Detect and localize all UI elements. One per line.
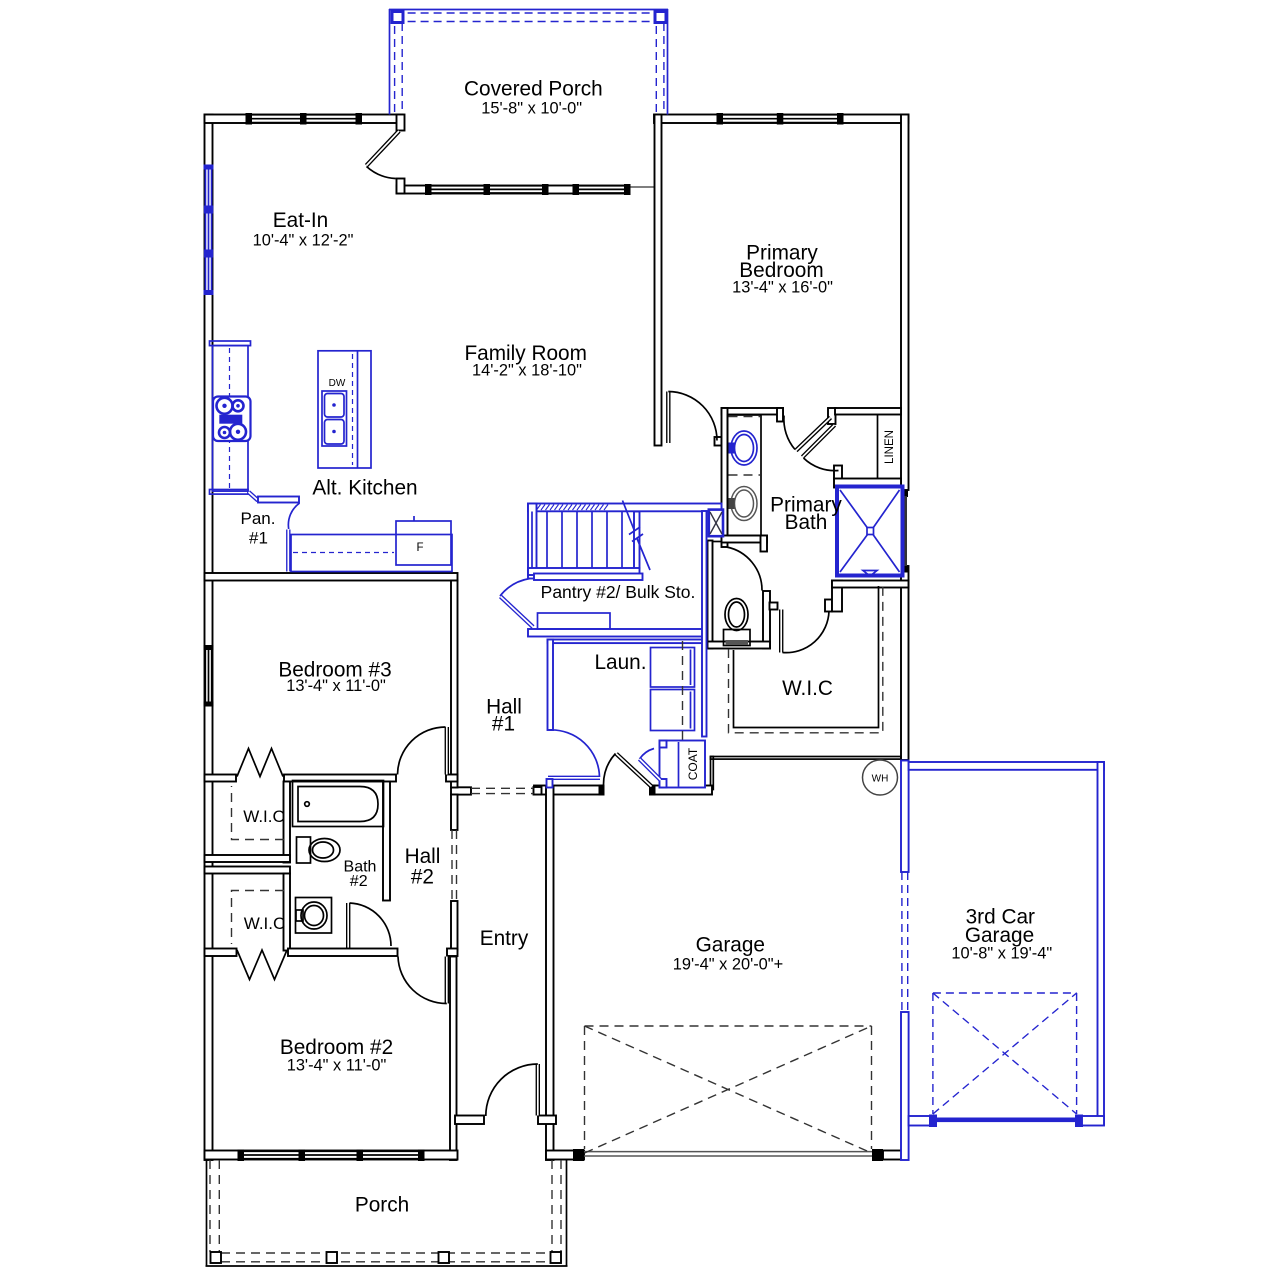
svg-text:Entry: Entry: [480, 927, 529, 950]
svg-text:10'-4" x 12'-2": 10'-4" x 12'-2": [253, 232, 354, 250]
svg-text:#2: #2: [350, 873, 368, 890]
svg-text:DW: DW: [329, 378, 346, 389]
svg-text:Eat-In: Eat-In: [273, 209, 329, 232]
svg-text:#1: #1: [249, 529, 268, 548]
svg-text:19'-4" x 20'-0"+: 19'-4" x 20'-0"+: [673, 956, 783, 974]
svg-text:#1: #1: [492, 713, 515, 736]
svg-text:13'-4" x 16'-0": 13'-4" x 16'-0": [732, 279, 833, 297]
svg-text:Porch: Porch: [355, 1194, 409, 1217]
svg-text:W.I.C: W.I.C: [244, 914, 286, 933]
svg-text:Pantry #2/ Bulk Sto.: Pantry #2/ Bulk Sto.: [541, 582, 696, 602]
svg-text:14'-2" x 18'-10": 14'-2" x 18'-10": [472, 362, 582, 380]
svg-text:Bath: Bath: [785, 511, 828, 534]
svg-text:Covered Porch: Covered Porch: [464, 78, 603, 101]
svg-text:13'-4" x 11'-0": 13'-4" x 11'-0": [287, 1057, 387, 1075]
svg-text:LINEN: LINEN: [884, 430, 896, 464]
svg-text:Laun.: Laun.: [594, 651, 646, 674]
svg-text:Pan.: Pan.: [241, 509, 276, 528]
svg-text:#2: #2: [411, 866, 434, 889]
svg-text:Garage: Garage: [696, 933, 765, 956]
svg-text:13'-4" x 11'-0": 13'-4" x 11'-0": [286, 677, 386, 695]
svg-text:Alt. Kitchen: Alt. Kitchen: [312, 477, 417, 500]
svg-text:COAT: COAT: [686, 747, 700, 780]
svg-text:W.I.C: W.I.C: [782, 677, 833, 700]
svg-text:W.I.C: W.I.C: [243, 807, 285, 826]
svg-text:F: F: [416, 542, 423, 554]
svg-text:10'-8" x 19'-4": 10'-8" x 19'-4": [951, 945, 1052, 963]
svg-text:WH: WH: [872, 774, 889, 785]
svg-text:15'-8" x 10'-0": 15'-8" x 10'-0": [481, 100, 582, 118]
